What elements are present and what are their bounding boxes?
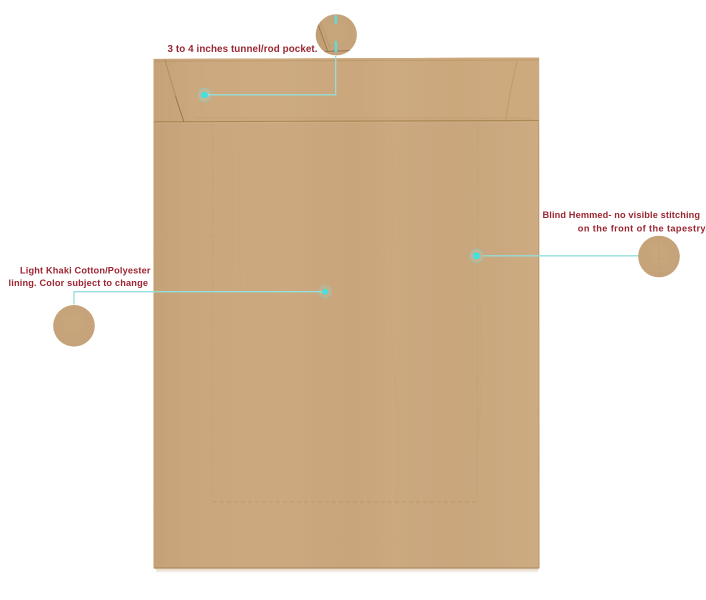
svg-text:Light Khaki Cotton/Polyester: Light Khaki Cotton/Polyester [20,265,151,275]
svg-text:on the front of the tapestry.: on the front of the tapestry. [578,224,706,234]
svg-text:lining. Color subject to chang: lining. Color subject to change [9,278,149,288]
svg-text:Blind Hemmed- no visible stitc: Blind Hemmed- no visible stitching [543,210,701,220]
svg-text:3 to 4 inches tunnel/rod pocke: 3 to 4 inches tunnel/rod pocket. [168,44,318,55]
